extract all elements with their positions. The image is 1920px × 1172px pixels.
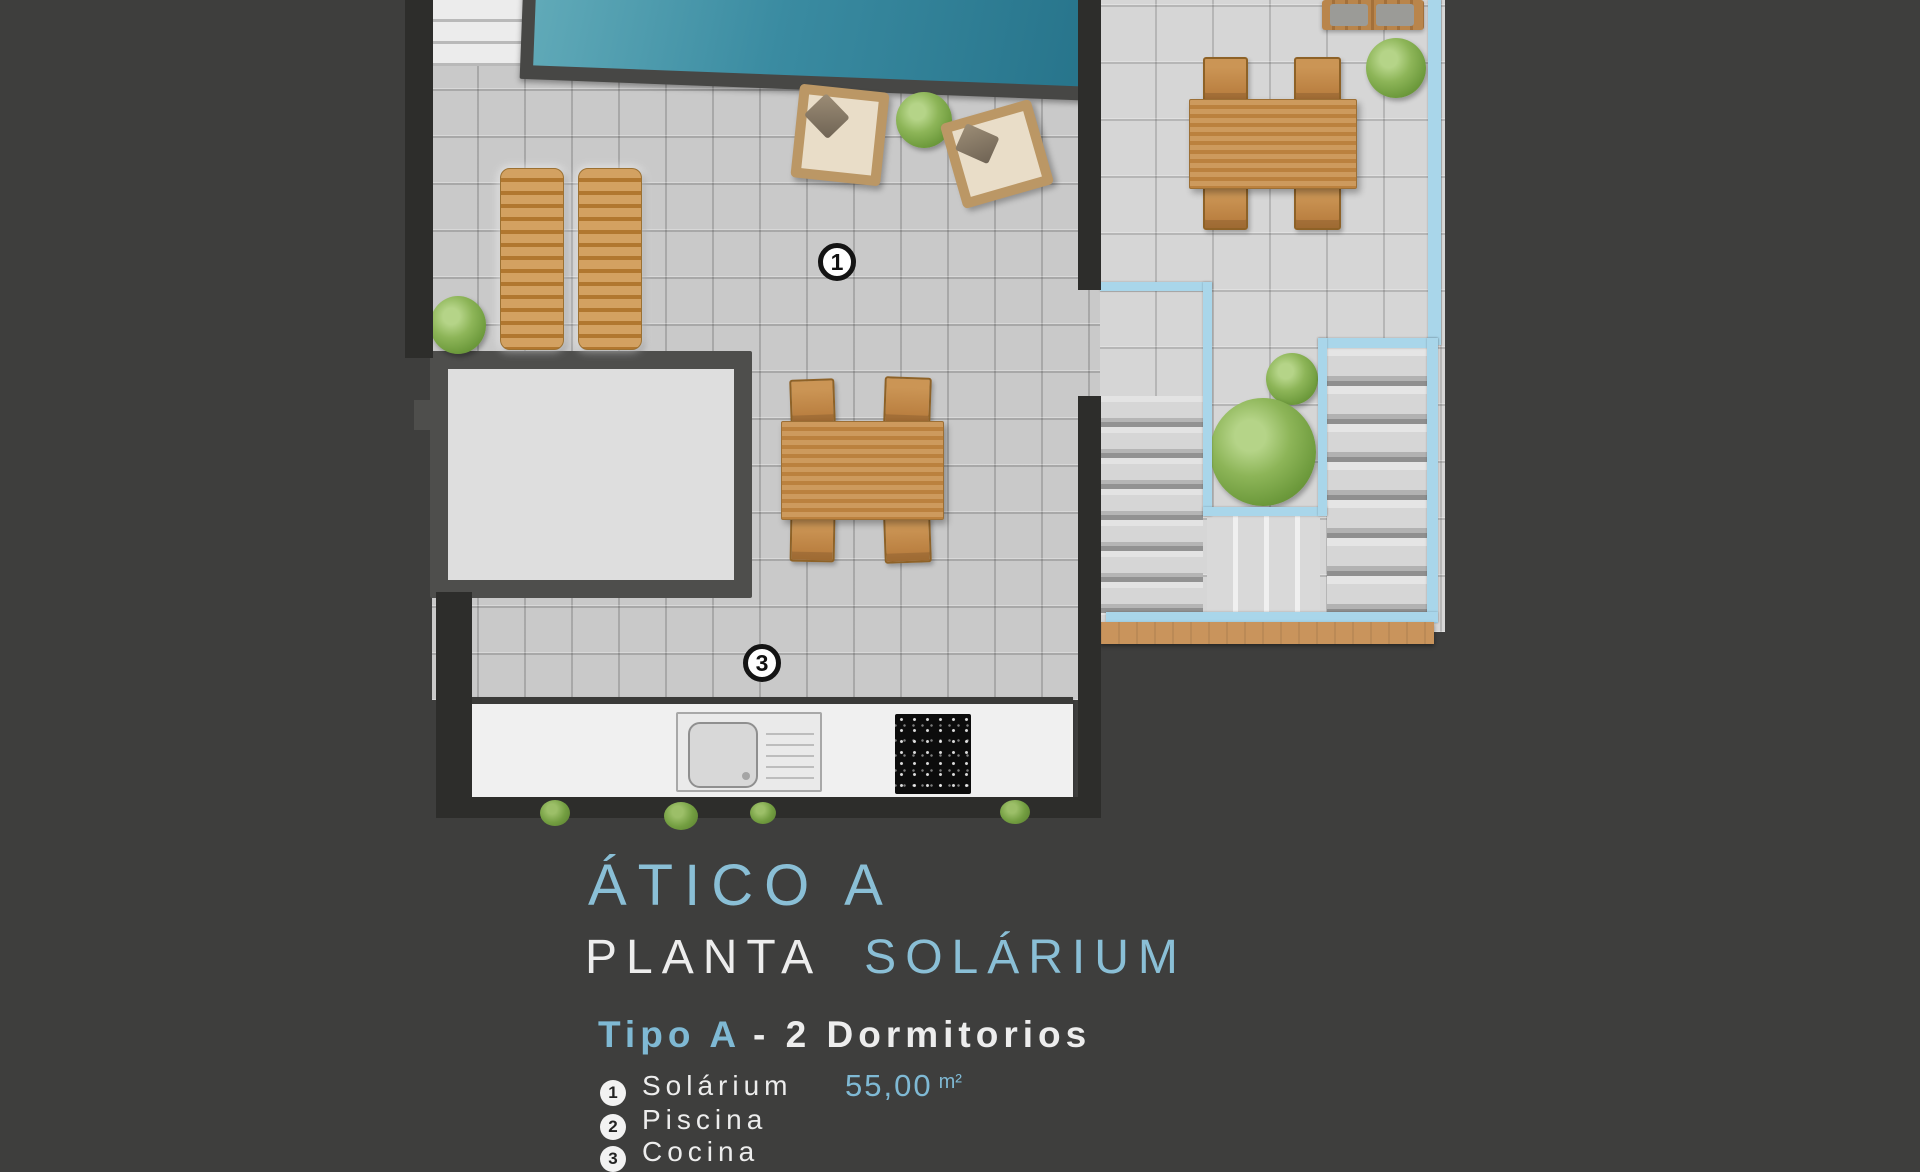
deck-strip xyxy=(1100,622,1434,644)
pool-water xyxy=(533,0,1091,87)
right-dining-chair xyxy=(1203,185,1248,230)
right-dining-chair xyxy=(1294,185,1341,230)
legend-area-unit: m² xyxy=(939,1071,962,1093)
dining-chair xyxy=(883,515,932,564)
left-wall-upper xyxy=(405,0,433,358)
kitchen-sink xyxy=(676,712,822,792)
legend-item-piscina: 2Piscina xyxy=(600,1104,767,1134)
left-wall-lower xyxy=(436,592,472,818)
legend-bullet-3: 3 xyxy=(600,1146,626,1172)
bench-cushion xyxy=(1376,4,1414,26)
hedge-tuft xyxy=(1000,800,1030,824)
roof-bench xyxy=(1322,0,1424,30)
glass-railing-stairs-right xyxy=(1427,338,1438,623)
legend-area-solarium: 55,00m² xyxy=(845,1068,962,1104)
dining-table-main xyxy=(781,421,944,520)
dining-table-right xyxy=(1189,99,1357,189)
plant-top-right xyxy=(1366,38,1426,98)
hedge-tuft xyxy=(750,802,776,824)
plan-type-line: Tipo A- 2 Dormitorios xyxy=(598,1014,1091,1056)
room-interior xyxy=(448,369,734,580)
plan-subtitle: PLANTASOLÁRIUM xyxy=(585,930,1187,985)
plan-type-blue: Tipo A xyxy=(598,1014,741,1055)
plant-near-loungers xyxy=(430,296,486,354)
glass-railing-planter-bottom xyxy=(1203,507,1327,516)
marker-3-badge: 3 xyxy=(743,644,781,682)
right-dining-chair xyxy=(1203,57,1248,103)
room-notch xyxy=(414,400,434,430)
stair-planter-bush-small xyxy=(1266,353,1318,405)
hedge-tuft xyxy=(540,800,570,826)
sun-lounger-1 xyxy=(500,168,564,350)
legend-label-cocina: Cocina xyxy=(642,1136,759,1167)
glass-railing-landing-side xyxy=(1203,282,1212,516)
legend-area-value: 55,00 xyxy=(845,1068,933,1103)
dining-chair xyxy=(790,516,836,563)
stair-planter-bush-large xyxy=(1210,398,1316,506)
legend-label-piscina: Piscina xyxy=(642,1104,767,1135)
bench-cushion xyxy=(1330,4,1368,26)
dining-chair xyxy=(789,378,836,426)
marker-1-number: 1 xyxy=(831,249,844,276)
poster-page: { "plan": { "markers": { "solarium": "1"… xyxy=(0,0,1920,1140)
cooktop xyxy=(895,714,971,794)
stairs-right-flight xyxy=(1327,348,1428,615)
divider-wall-upper xyxy=(1078,0,1101,290)
plan-subtitle-blue: SOLÁRIUM xyxy=(864,931,1187,984)
right-dining-chair xyxy=(1294,57,1341,103)
stair-bulkhead-room xyxy=(430,351,752,598)
plan-title: ÁTICO A xyxy=(588,852,894,919)
armchair-2-pillow xyxy=(955,123,999,164)
glass-railing-bottom xyxy=(1106,612,1438,622)
glass-railing-right-edge xyxy=(1428,0,1441,345)
plan-subtitle-white: PLANTA xyxy=(585,931,822,984)
glass-railing-stairs-top xyxy=(1318,338,1438,348)
divider-wall-lower xyxy=(1078,396,1101,818)
dining-chair xyxy=(883,376,932,426)
stairs-center-flight xyxy=(1207,516,1320,614)
glass-railing-stairs-left xyxy=(1318,338,1327,516)
glass-railing-landing-top xyxy=(1100,282,1212,291)
hedge-tuft xyxy=(664,802,698,830)
sink-basin xyxy=(688,722,758,788)
legend-item-solarium: 1Solárium 55,00m² xyxy=(600,1070,792,1100)
armchair-1 xyxy=(790,84,889,187)
legend-bullet-1: 1 xyxy=(600,1080,626,1106)
sink-drainer xyxy=(766,724,814,782)
legend-item-cocina: 3Cocina xyxy=(600,1136,759,1166)
legend-label-solarium: Solárium xyxy=(642,1070,792,1101)
armchair-1-pillow xyxy=(804,94,850,140)
plan-type-white: - 2 Dormitorios xyxy=(753,1014,1091,1055)
marker-3-number: 3 xyxy=(756,650,769,677)
stairs-left-flight xyxy=(1100,396,1203,615)
sun-lounger-2 xyxy=(578,168,642,350)
marker-1-badge: 1 xyxy=(818,243,856,281)
